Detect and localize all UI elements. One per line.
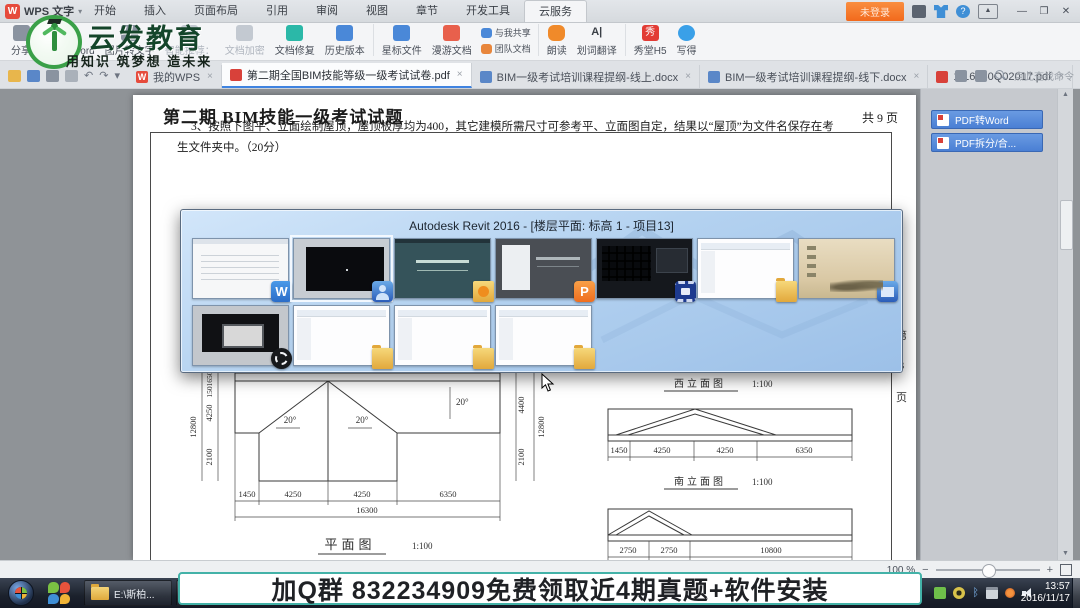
bluetooth-icon[interactable]: ᛒ <box>972 587 979 599</box>
svg-text:20°: 20° <box>456 397 469 407</box>
svg-text:西立面图: 西立面图 <box>674 377 726 390</box>
menu-tab-section[interactable]: 章节 <box>402 0 452 22</box>
brand-person-icon <box>46 23 62 61</box>
zoom-slider-thumb[interactable] <box>982 564 996 578</box>
svg-text:1:100: 1:100 <box>752 379 773 389</box>
brand-watermark: 云发教育 用知识 筑梦想 造未来 <box>0 15 260 70</box>
revit-badge-icon <box>372 281 393 302</box>
svg-text:4250: 4250 <box>354 489 371 499</box>
svg-text:150: 150 <box>205 386 214 398</box>
ribbon-separator <box>373 24 374 56</box>
page-count: 共 9 页 <box>862 109 898 126</box>
ribbon-read-aloud[interactable]: 朗读 <box>542 22 572 57</box>
document-tabs: W 我的WPS × 第二期全国BIM技能等级一级考试试卷.pdf × BIM一级… <box>128 60 1080 88</box>
svg-text:南立面图: 南立面图 <box>674 475 726 488</box>
menu-tab-cloud[interactable]: 云服务 <box>524 0 587 22</box>
show-desktop-button[interactable] <box>1072 578 1080 608</box>
switcher-window-explorer-2[interactable] <box>293 305 390 366</box>
xiutang-icon: 秀 <box>642 25 659 41</box>
switcher-window-video-course[interactable] <box>394 238 491 299</box>
pdf-to-word-button[interactable]: PDF转Word <box>931 110 1043 129</box>
wps-presentation-badge-icon: P <box>574 281 595 302</box>
close-tab-icon[interactable]: × <box>685 71 691 82</box>
switcher-window-explorer-3[interactable] <box>394 305 491 366</box>
command-search-input[interactable]: 点此查找命令 <box>1014 68 1074 83</box>
obs-badge-icon <box>271 348 292 369</box>
pdf-convert-icon <box>937 114 949 126</box>
ribbon-history-version[interactable]: 历史版本 <box>320 22 370 57</box>
svg-text:20°: 20° <box>284 415 297 425</box>
window-badge-icon <box>877 281 898 302</box>
svg-text:4250: 4250 <box>717 445 734 455</box>
svg-text:4400: 4400 <box>516 397 526 414</box>
taskbar-explorer-window[interactable]: E:\斯柏... <box>84 580 172 606</box>
star-folder-icon <box>393 25 410 41</box>
svg-text:2750: 2750 <box>661 545 678 555</box>
svg-text:2100: 2100 <box>516 449 526 466</box>
svg-text:平面图: 平面图 <box>324 537 375 552</box>
svg-text:12800: 12800 <box>188 416 198 437</box>
wps-writer-badge-icon: W <box>271 281 292 302</box>
svg-text:1:100: 1:100 <box>752 477 773 487</box>
system-tray: ᛒ <box>934 578 1034 608</box>
ribbon-roaming-docs[interactable]: 漫游文档 <box>427 22 477 57</box>
svg-text:20°: 20° <box>356 415 369 425</box>
redo-icon[interactable]: ↷ <box>99 70 108 82</box>
ribbon-translate[interactable]: A| 划词翻译 <box>572 22 622 57</box>
translate-icon: A| <box>588 25 605 41</box>
open-file-icon[interactable] <box>8 70 21 82</box>
svg-text:1450: 1450 <box>239 489 256 499</box>
print-preview-icon[interactable] <box>65 70 78 82</box>
pdf-file-icon <box>230 69 242 81</box>
mouse-cursor <box>541 373 555 393</box>
pdf-split-icon <box>937 137 949 149</box>
history-icon <box>336 25 353 41</box>
screen: W WPS 文字 ▾ 开始 插入 页面布局 引用 审阅 视图 章节 开发工具 云… <box>0 0 1080 608</box>
menu-tab-devtools[interactable]: 开发工具 <box>452 0 524 22</box>
ribbon-xiutang-h5[interactable]: 秀 秀堂H5 <box>629 22 672 57</box>
pdf-file-icon <box>936 71 948 83</box>
switcher-row-2 <box>192 305 592 366</box>
svg-text:6350: 6350 <box>796 445 813 455</box>
search-icon <box>995 70 1006 81</box>
svg-text:12800: 12800 <box>536 416 546 437</box>
doc-repair-icon <box>286 25 303 41</box>
start-button[interactable] <box>8 580 34 606</box>
qq-group-banner: 加Q群 832234909免费领取近4期真题+软件安装 <box>178 572 922 605</box>
collapse-ribbon-icon[interactable]: ▲ <box>978 4 998 19</box>
menu-tab-review[interactable]: 审阅 <box>302 0 352 22</box>
switcher-window-explorer-4[interactable] <box>495 305 592 366</box>
reading-layout-icon[interactable] <box>975 70 987 82</box>
help-icon[interactable]: ? <box>956 5 970 18</box>
switcher-row-1: W P <box>192 238 895 299</box>
svg-text:2100: 2100 <box>204 449 214 466</box>
roaming-folder-icon <box>443 25 460 41</box>
ribbon-shared-with-me[interactable]: 与我共享 <box>481 26 531 39</box>
tab-outline-online-docx[interactable]: BIM一级考试培训课程提纲-线上.docx × <box>472 65 700 88</box>
roof-plan-drawing: 20° 20° 20° 1450 4250 4250 6350 16300 <box>150 363 560 563</box>
switcher-window-desktop[interactable] <box>798 238 895 299</box>
banner-text: 加Q群 832234909免费领取近4期真题+软件安装 <box>271 571 828 607</box>
alt-tab-switcher: Autodesk Revit 2016 - [楼层平面: 标高 1 - 项目13… <box>180 209 903 373</box>
folder-badge-icon <box>473 348 494 369</box>
svg-text:1:100: 1:100 <box>412 541 433 551</box>
question-text: 3、按照下图平、立面绘制屋顶，屋顶板厚均为400，其它建模所需尺寸可参考平、立面… <box>177 117 837 159</box>
ribbon-team-docs[interactable]: 团队文档 <box>481 42 531 55</box>
save-icon[interactable] <box>27 70 40 82</box>
zoom-slider[interactable] <box>936 569 1040 571</box>
minimize-button[interactable]: — <box>1012 4 1032 20</box>
taskbar-clock[interactable]: 13:57 2016/11/17 <box>1021 581 1070 605</box>
eye-protect-icon[interactable] <box>955 70 967 82</box>
docx-file-icon <box>708 71 720 83</box>
switcher-window-video-editor[interactable] <box>596 238 693 299</box>
message-icon[interactable] <box>912 5 926 18</box>
ribbon-share-group: 与我共享 团队文档 <box>477 22 535 55</box>
svg-text:6350: 6350 <box>440 489 457 499</box>
tabbar-right-tools: 点此查找命令 <box>955 68 1074 83</box>
pdf-split-merge-button[interactable]: PDF拆分/合... <box>931 133 1043 152</box>
svg-text:10800: 10800 <box>760 545 781 555</box>
shared-with-me-icon <box>481 28 492 38</box>
svg-text:4250: 4250 <box>285 489 302 499</box>
tray-app-icon[interactable] <box>934 587 946 599</box>
tray-security-icon[interactable] <box>953 587 965 599</box>
new-tab-button[interactable]: + <box>1073 70 1080 88</box>
zoom-out-button[interactable]: − <box>922 564 928 576</box>
microphone-icon <box>548 25 565 41</box>
svg-text:2750: 2750 <box>620 545 637 555</box>
folder-icon <box>91 587 109 600</box>
switcher-window-revit-2016[interactable] <box>293 238 390 299</box>
close-button[interactable]: ✕ <box>1056 4 1076 20</box>
zoom-in-button[interactable]: + <box>1047 564 1053 576</box>
clock-time: 13:57 <box>1021 581 1070 593</box>
switcher-window-explorer-1[interactable] <box>697 238 794 299</box>
ribbon-separator <box>538 24 539 56</box>
close-tab-icon[interactable]: × <box>207 71 213 82</box>
ribbon-xiede[interactable]: 写得 <box>672 22 702 57</box>
print-icon[interactable] <box>46 70 59 82</box>
svg-text:1650: 1650 <box>205 371 214 386</box>
restore-button[interactable]: ❐ <box>1034 4 1054 20</box>
svg-text:1450: 1450 <box>611 445 628 455</box>
ribbon-starred-files[interactable]: 星标文件 <box>377 22 427 57</box>
team-docs-icon <box>481 44 492 54</box>
docx-file-icon <box>480 71 492 83</box>
undo-icon[interactable]: ↶ <box>84 70 93 82</box>
close-tab-icon[interactable]: × <box>457 69 463 80</box>
media-folder-badge-icon <box>473 281 494 302</box>
switcher-window-wps-writer[interactable]: W <box>192 238 289 299</box>
folder-badge-icon <box>776 281 797 302</box>
svg-text:4250: 4250 <box>654 445 671 455</box>
quick-access-toolbar: ↶ ↷ ▾ <box>0 70 128 88</box>
quickbar-more-icon[interactable]: ▾ <box>114 70 120 82</box>
close-tab-icon[interactable]: × <box>914 71 920 82</box>
scrollbar-thumb[interactable] <box>1060 200 1073 250</box>
clock-date: 2016/11/17 <box>1021 593 1070 605</box>
svg-text:16300: 16300 <box>356 505 377 515</box>
switcher-title: Autodesk Revit 2016 - [楼层平面: 标高 1 - 项目13… <box>181 217 902 234</box>
brand-tagline: 用知识 筑梦想 造未来 <box>66 51 212 70</box>
switcher-window-obs[interactable] <box>192 305 289 366</box>
window-controls: — ❐ ✕ <box>1012 4 1076 20</box>
login-button[interactable]: 未登录 <box>846 2 904 21</box>
wps-home-icon: W <box>136 71 148 83</box>
folder-badge-icon <box>574 348 595 369</box>
elevation-drawings: 西立面图 1:100 1450 4250 4250 6350 南立面图 <box>600 373 860 573</box>
video-badge-icon <box>675 281 696 302</box>
svg-text:4250: 4250 <box>204 405 214 422</box>
ribbon-doc-repair[interactable]: 文档修复 <box>270 22 320 57</box>
folder-badge-icon <box>372 348 393 369</box>
windows-logo-icon <box>15 587 27 599</box>
tab-outline-offline-docx[interactable]: BIM一级考试培训课程提纲-线下.docx × <box>700 65 928 88</box>
fit-page-icon[interactable] <box>1060 564 1072 576</box>
scroll-up-icon[interactable]: ▲ <box>1058 88 1073 101</box>
xiede-icon <box>678 25 695 41</box>
vertical-scrollbar[interactable]: ▲ ▼ <box>1057 88 1073 560</box>
tray-clipboard-icon[interactable] <box>986 587 998 599</box>
menu-tab-view[interactable]: 视图 <box>352 0 402 22</box>
titlebar-right: 未登录 ? ▲ — ❐ ✕ <box>846 2 1076 21</box>
pdf-tools-panel: PDF转Word PDF拆分/合... <box>920 88 1058 560</box>
ribbon-separator <box>625 24 626 56</box>
tray-audio-app-icon[interactable] <box>1005 588 1015 598</box>
scroll-down-icon[interactable]: ▼ <box>1058 547 1073 560</box>
skin-icon[interactable] <box>934 5 948 18</box>
taskbar-media-app-icon[interactable] <box>48 582 70 604</box>
switcher-window-wps-presentation[interactable]: P <box>495 238 592 299</box>
